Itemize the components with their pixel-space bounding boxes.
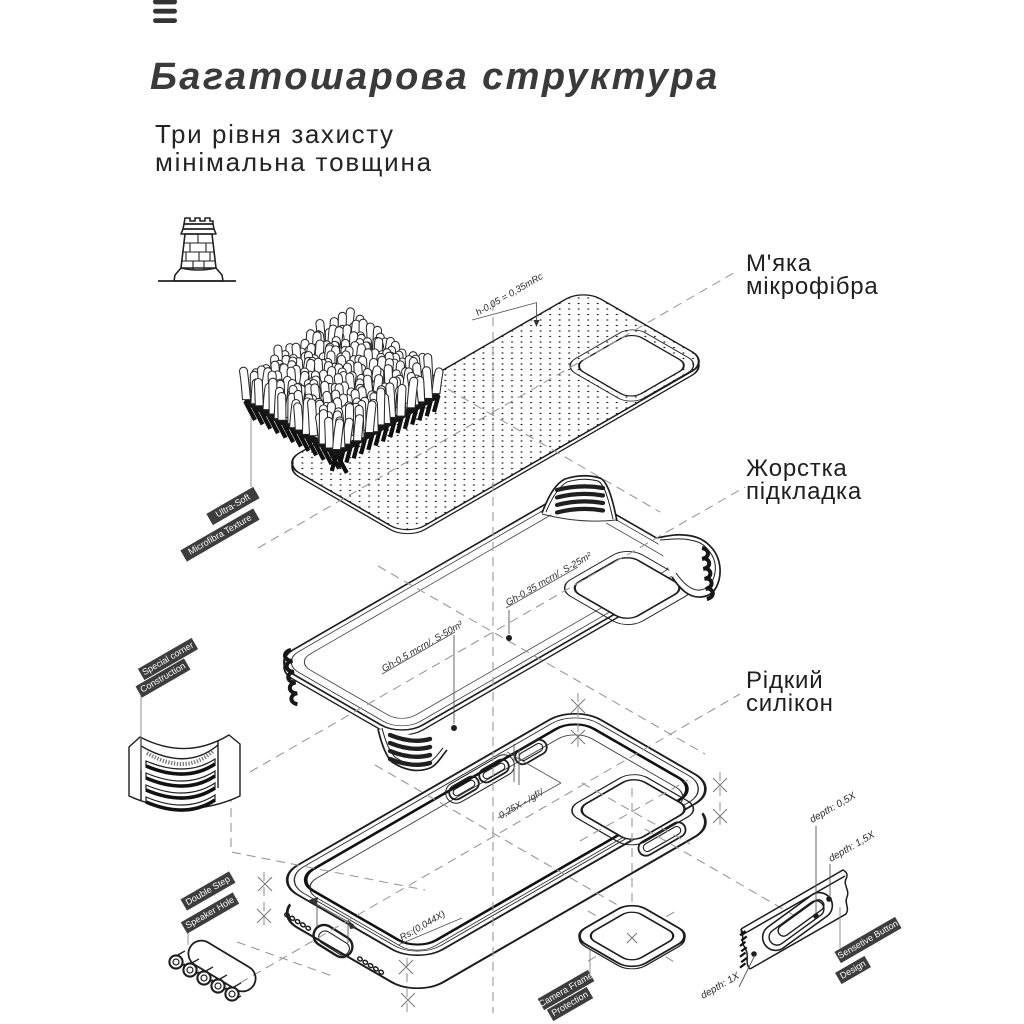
svg-text:мінімальна товщина: мінімальна товщина xyxy=(155,147,433,177)
svg-text:мікрофібра: мікрофібра xyxy=(746,273,879,300)
svg-text:Багатошарова структура: Багатошарова структура xyxy=(150,56,720,98)
svg-text:силікон: силікон xyxy=(746,690,834,717)
svg-text:підкладка: підкладка xyxy=(746,478,862,505)
svg-text:Три рівня захисту: Три рівня захисту xyxy=(155,119,395,149)
